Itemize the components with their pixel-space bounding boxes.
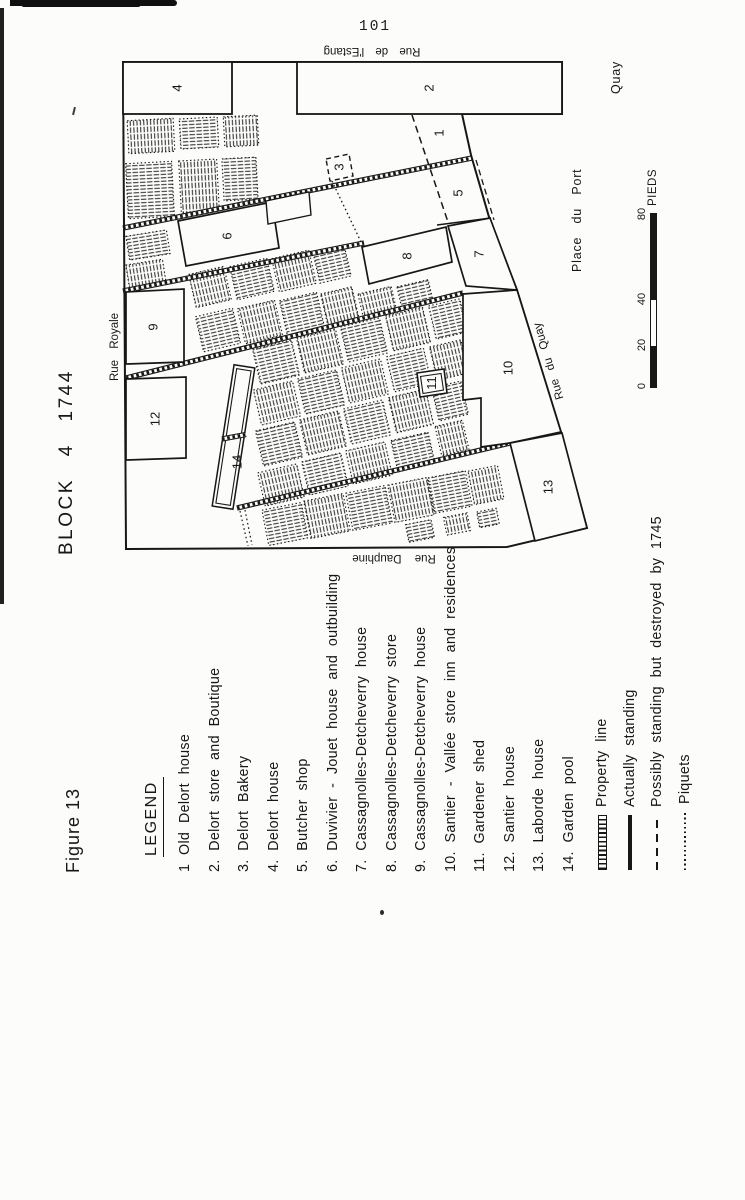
legend-symbol-possibly-standing: Possibly standing but destroyed by 1745	[647, 516, 667, 870]
legend-symbol-label: Property line	[594, 718, 610, 807]
scan-artifact-top-smudge2	[22, 4, 140, 7]
scan-artifact-dot	[380, 910, 384, 915]
legend-symbol-actually-standing: Actually standing	[620, 689, 640, 870]
scale-tick: 80	[636, 208, 648, 220]
legend-item: 13. Laborde house	[531, 739, 547, 872]
legend-item: 3. Delort Bakery	[236, 756, 252, 872]
possibly-standing-swatch-icon	[656, 815, 659, 870]
legend-item: 10. Santier - Vallée store inn and resid…	[443, 547, 459, 872]
figure-title: BLOCK 4 1744	[56, 369, 78, 555]
legend-symbol-label: Possibly standing but destroyed by 1745	[649, 516, 665, 807]
scan-artifact-left-edge	[0, 8, 4, 604]
scanned-page: 101	[0, 0, 745, 1200]
scale-tick: 20	[636, 339, 648, 351]
legend-item: 9. Cassagnolles-Detcheverry house	[413, 627, 429, 872]
legend-symbol-property-line: Property line	[592, 718, 612, 870]
scale-bar-segments	[650, 213, 657, 388]
legend-item-list: 1 Old Delort house2. Delort store and Bo…	[177, 472, 597, 872]
scale-bar: PIEDS 0204080	[636, 148, 668, 388]
scale-bar-segment-solid2	[650, 213, 657, 299]
legend-symbol-piquets: Piquets	[675, 754, 695, 870]
legend-item: 7. Cassagnolles-Detcheverry house	[354, 627, 370, 872]
legend-symbol-label: Actually standing	[622, 689, 638, 807]
legend-item: 12. Santier house	[502, 746, 518, 872]
legend-item: 11. Gardener shed	[472, 740, 488, 872]
legend-item: 14. Garden pool	[561, 756, 577, 872]
legend-item: 2. Delort store and Boutique	[207, 668, 223, 872]
scale-bar-segment-solid	[650, 347, 657, 388]
legend-symbol-label: Piquets	[677, 754, 693, 804]
piquets-swatch-icon	[684, 812, 686, 870]
legend-item: 8. Cassagnolles-Detcheverry store	[384, 634, 400, 872]
scale-tick: 0	[636, 383, 648, 389]
scale-tick: 40	[636, 293, 648, 305]
street-quay: Quay	[609, 61, 623, 94]
scale-bar-segment-hollow	[650, 299, 657, 347]
figure-label: Figure 13	[63, 788, 84, 873]
scale-bar-unit: PIEDS	[647, 169, 659, 206]
legend-heading: LEGEND	[143, 777, 164, 857]
rotated-figure-layer: Figure 13 BLOCK 4 1744 LEGEND 1 Old Delo…	[0, 0, 745, 1200]
actually-standing-swatch-icon	[628, 815, 632, 870]
legend-symbol-list: Property lineActually standingPossibly s…	[592, 470, 712, 870]
property-line-swatch-icon	[598, 815, 607, 870]
legend-item: 4. Delort house	[266, 762, 282, 872]
street-place-du-port: Place du Port	[570, 169, 584, 272]
legend-item: 1 Old Delort house	[177, 734, 193, 872]
legend-item: 5. Butcher shop	[295, 758, 311, 872]
legend-item: 6. Duvivier - Jouet house and outbuildin…	[325, 574, 341, 872]
